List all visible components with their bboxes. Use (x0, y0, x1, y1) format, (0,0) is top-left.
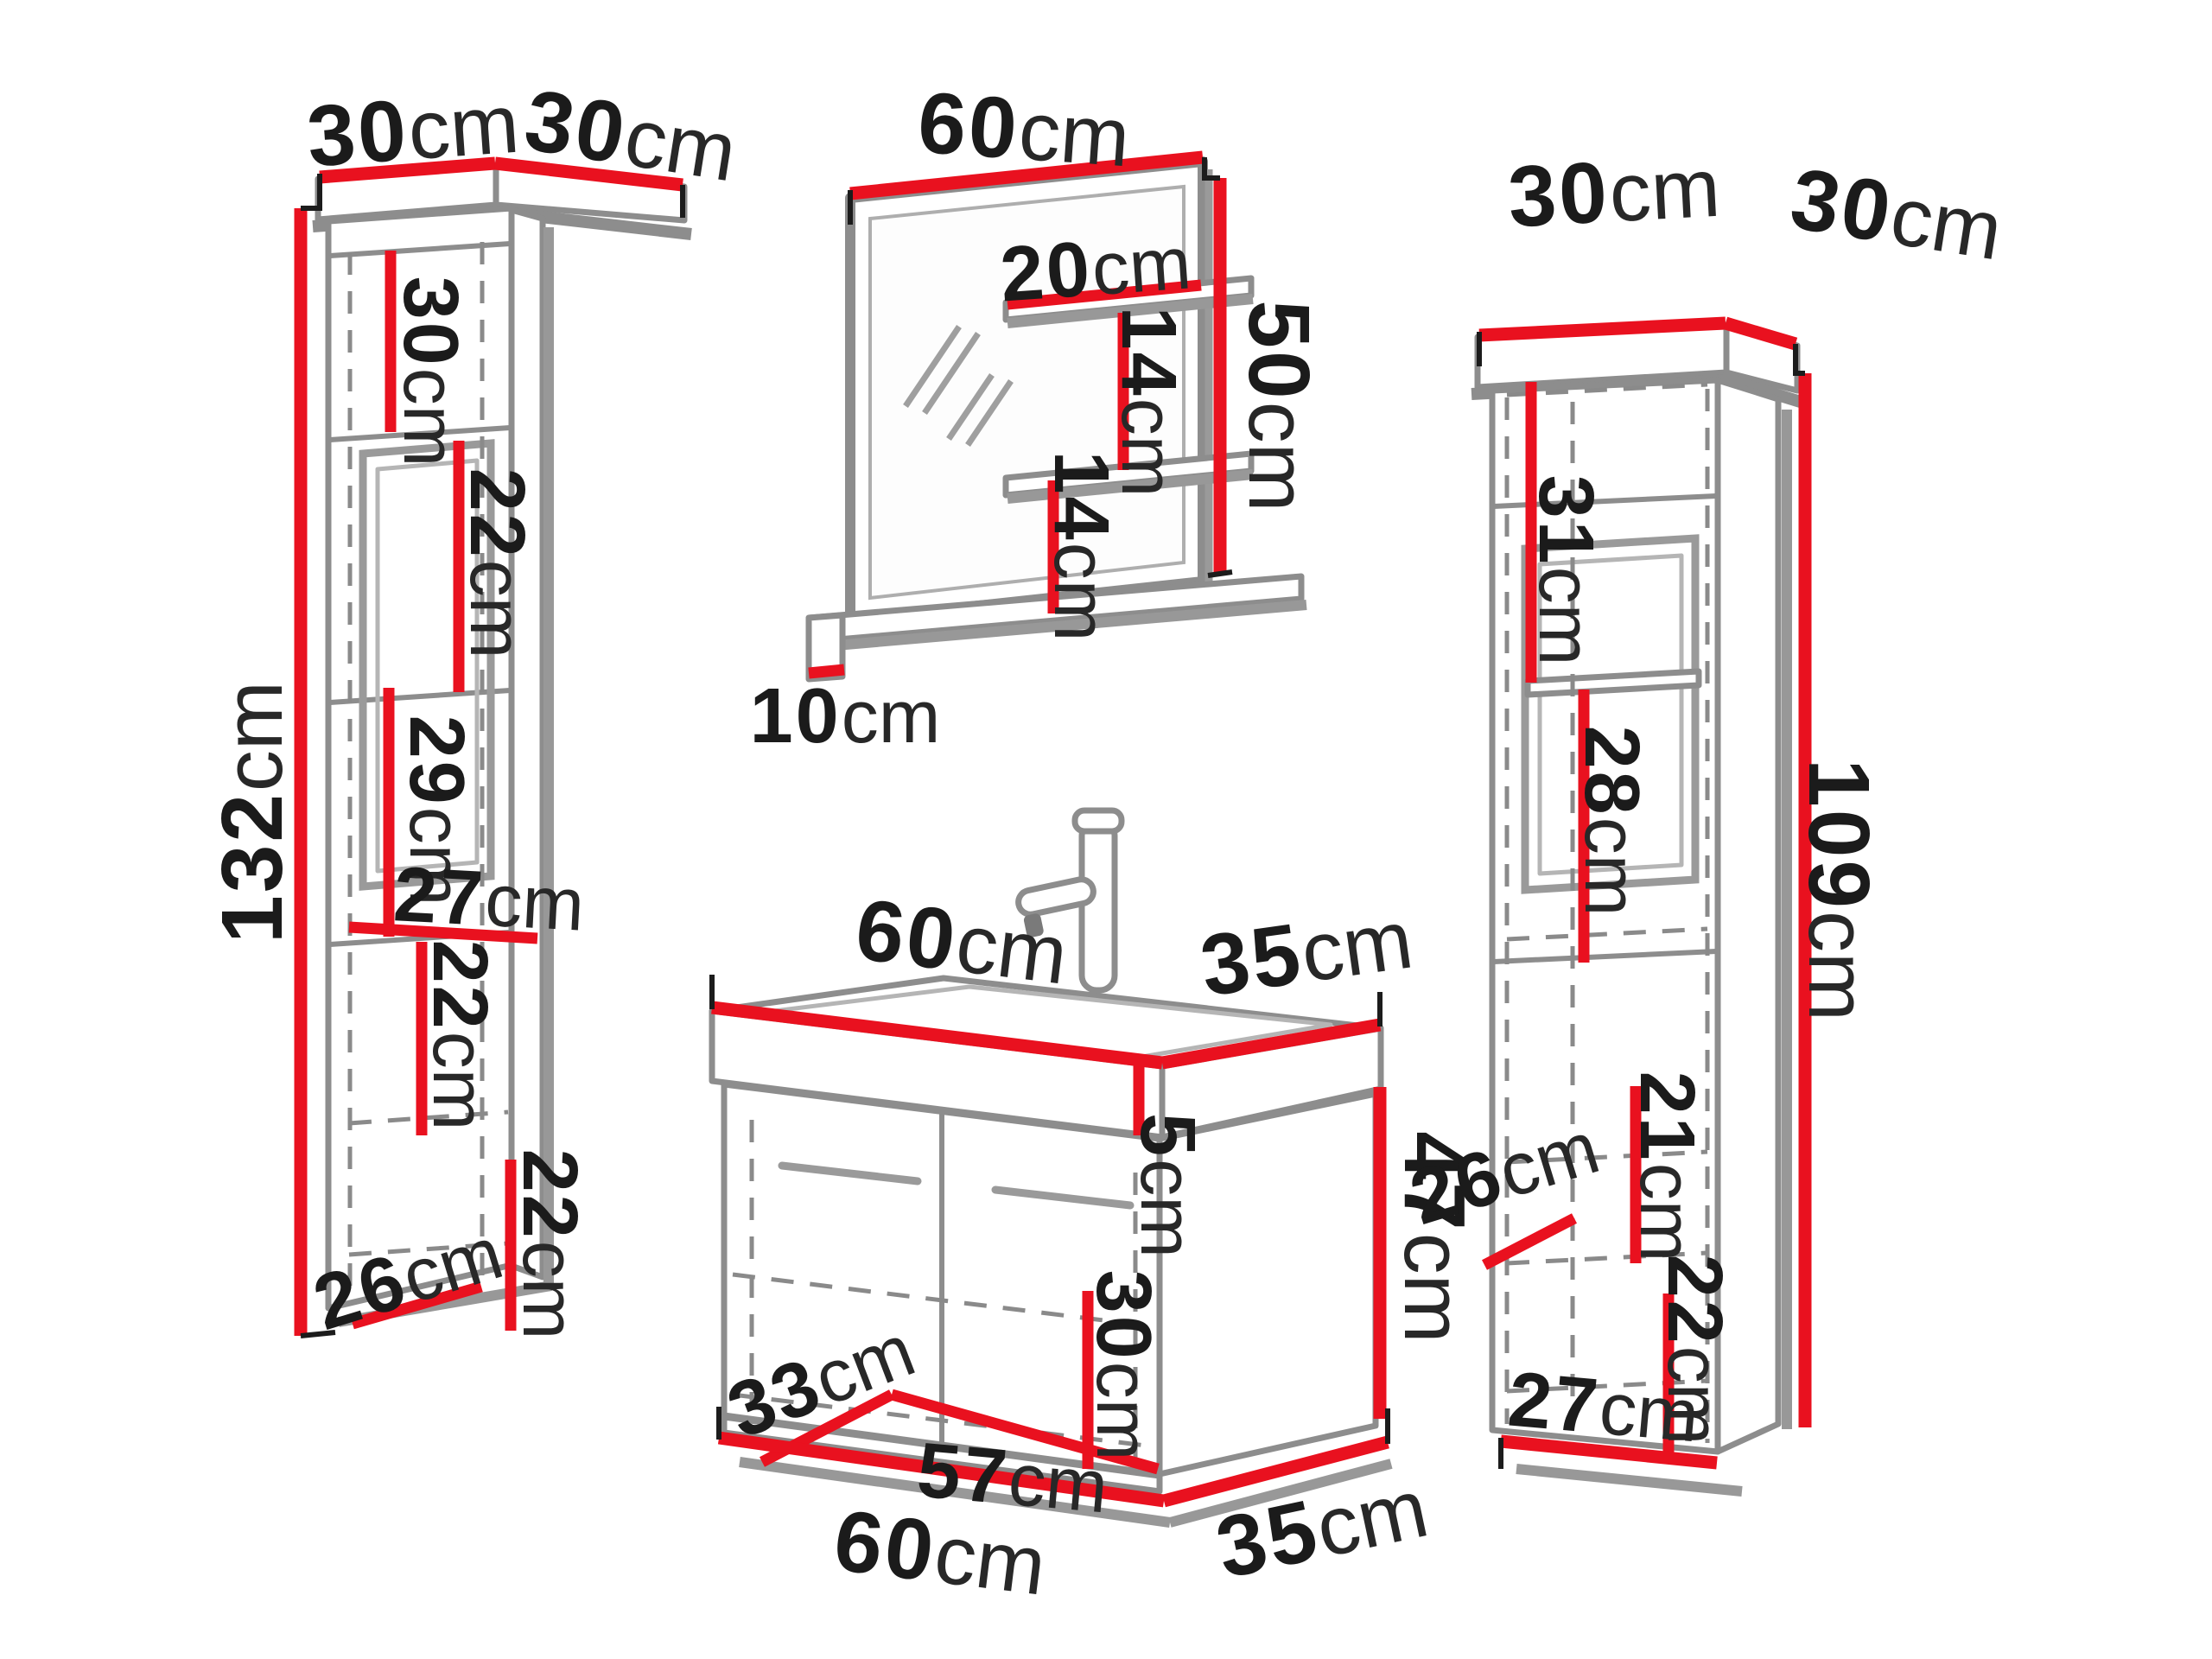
dim-label-right-height: 109cm (1790, 759, 1887, 1021)
dim-label-right-top-depth: 30cm (1784, 150, 2009, 279)
dim-label-sink-top-depth: 35cm (1195, 889, 1418, 1014)
dim-label-mirror-shelf-gap-b: 14cm (1038, 451, 1124, 642)
dim-label-left-inner-width: 27cm (391, 851, 587, 947)
dim-label-sink-basin-height: 5cm (1124, 1113, 1211, 1258)
dim-label-left-inner-shelf-a: 30cm (387, 276, 474, 467)
dim-label-left-inner-shelf-d: 22cm (416, 940, 503, 1131)
dim-label-mirror-shelf-depth: 10cm (750, 673, 941, 760)
dim-label-sink-inner-height: 30cm (1080, 1270, 1166, 1461)
dim-label-left-inner-shelf-e: 22cm (506, 1149, 593, 1340)
left-tall-cabinet (301, 163, 691, 1336)
dim-label-mirror-height: 50cm (1230, 300, 1327, 512)
diagram-stage: 30cm30cm132cm30cm22cm29cm27cm22cm22cm26c… (0, 0, 2212, 1659)
dim-label-left-height: 132cm (204, 681, 301, 944)
furniture-dimension-diagram: 30cm30cm132cm30cm22cm29cm27cm22cm22cm26c… (0, 0, 2212, 1659)
dim-label-mirror-shelf-width: 20cm (997, 219, 1193, 318)
dim-label-left-inner-shelf-b: 22cm (454, 468, 540, 659)
dim-label-right-inner-shelf-a: 31cm (1522, 475, 1609, 666)
dim-label-right-top-width: 30cm (1506, 138, 1723, 246)
dim-label-right-inner-shelf-b: 28cm (1568, 726, 1655, 917)
left-cabinet-side-panel (512, 210, 543, 1277)
dim-label-right-inner-shelf-c: 21cm (1624, 1071, 1710, 1262)
dim-label-mirror-width: 60cm (915, 74, 1133, 186)
dim-label-left-top-width: 30cm (304, 74, 522, 186)
